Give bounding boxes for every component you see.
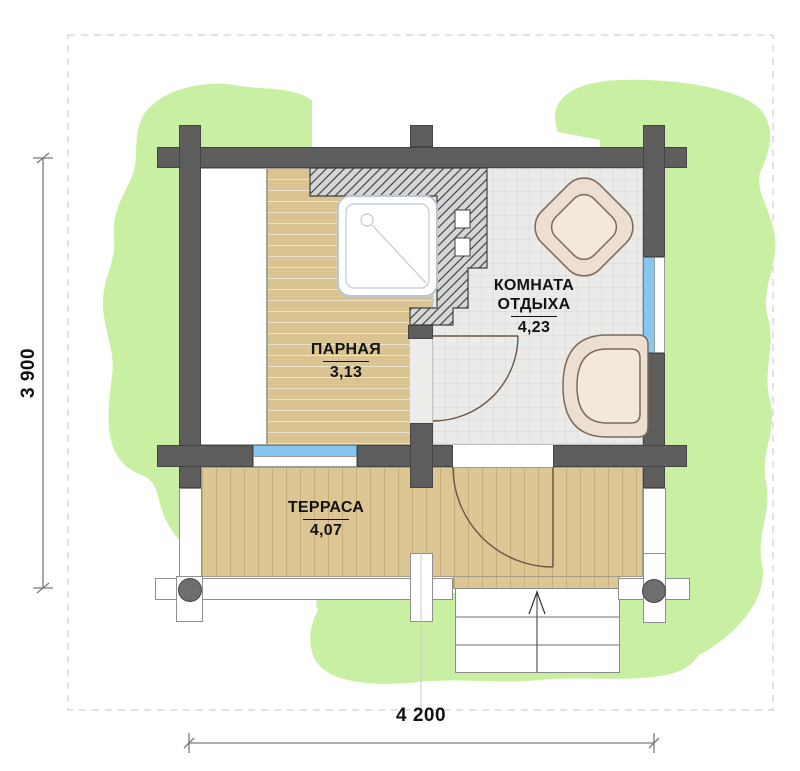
dimension-horizontal-line [184,733,659,753]
label-rule [303,519,349,520]
wall-interior-lower [410,423,433,488]
entrance-steps [455,588,620,673]
label-rule [511,316,557,317]
wall-bottom-right-segment [553,445,687,467]
wall-right-upper [643,125,665,257]
wall-bottom-middle-segment [357,445,453,467]
wall-right-lower [643,353,665,488]
dimension-vertical-value: 3 900 [18,348,40,398]
terrace-post-middle [410,553,433,622]
wall-stub-stove [408,325,433,339]
terrace-post-right [643,553,666,623]
terrace-post-left [176,576,203,622]
wall-stub-top-middle [410,125,433,147]
terrace-area: 4,07 [256,521,396,540]
rest-room-area: 4,23 [464,318,604,337]
left-post-strip [179,488,202,579]
terrace-name: ТЕРРАСА [256,498,396,517]
steam-room-area: 3,13 [276,363,416,382]
window-rest-room-sill [654,257,665,353]
steam-room-label: ПАРНАЯ 3,13 [276,340,416,382]
window-terrace-sill [253,456,357,467]
rest-room-name-line1: КОМНАТА [464,276,604,295]
steam-room-bench [200,168,267,445]
wall-top [157,147,687,168]
wall-bottom-left-segment [157,445,253,467]
floor-plan-canvas: ПАРНАЯ 3,13 КОМНАТА ОТДЫХА 4,23 ТЕРРАСА … [0,0,800,771]
label-rule [323,361,369,362]
steam-room-name: ПАРНАЯ [276,340,416,359]
dimension-horizontal-value: 4 200 [396,705,446,727]
rest-room-name-line2: ОТДЫХА [464,295,604,314]
rest-room-label: КОМНАТА ОТДЫХА 4,23 [464,276,604,337]
wall-left [179,125,201,488]
terrace-label: ТЕРРАСА 4,07 [256,498,396,540]
